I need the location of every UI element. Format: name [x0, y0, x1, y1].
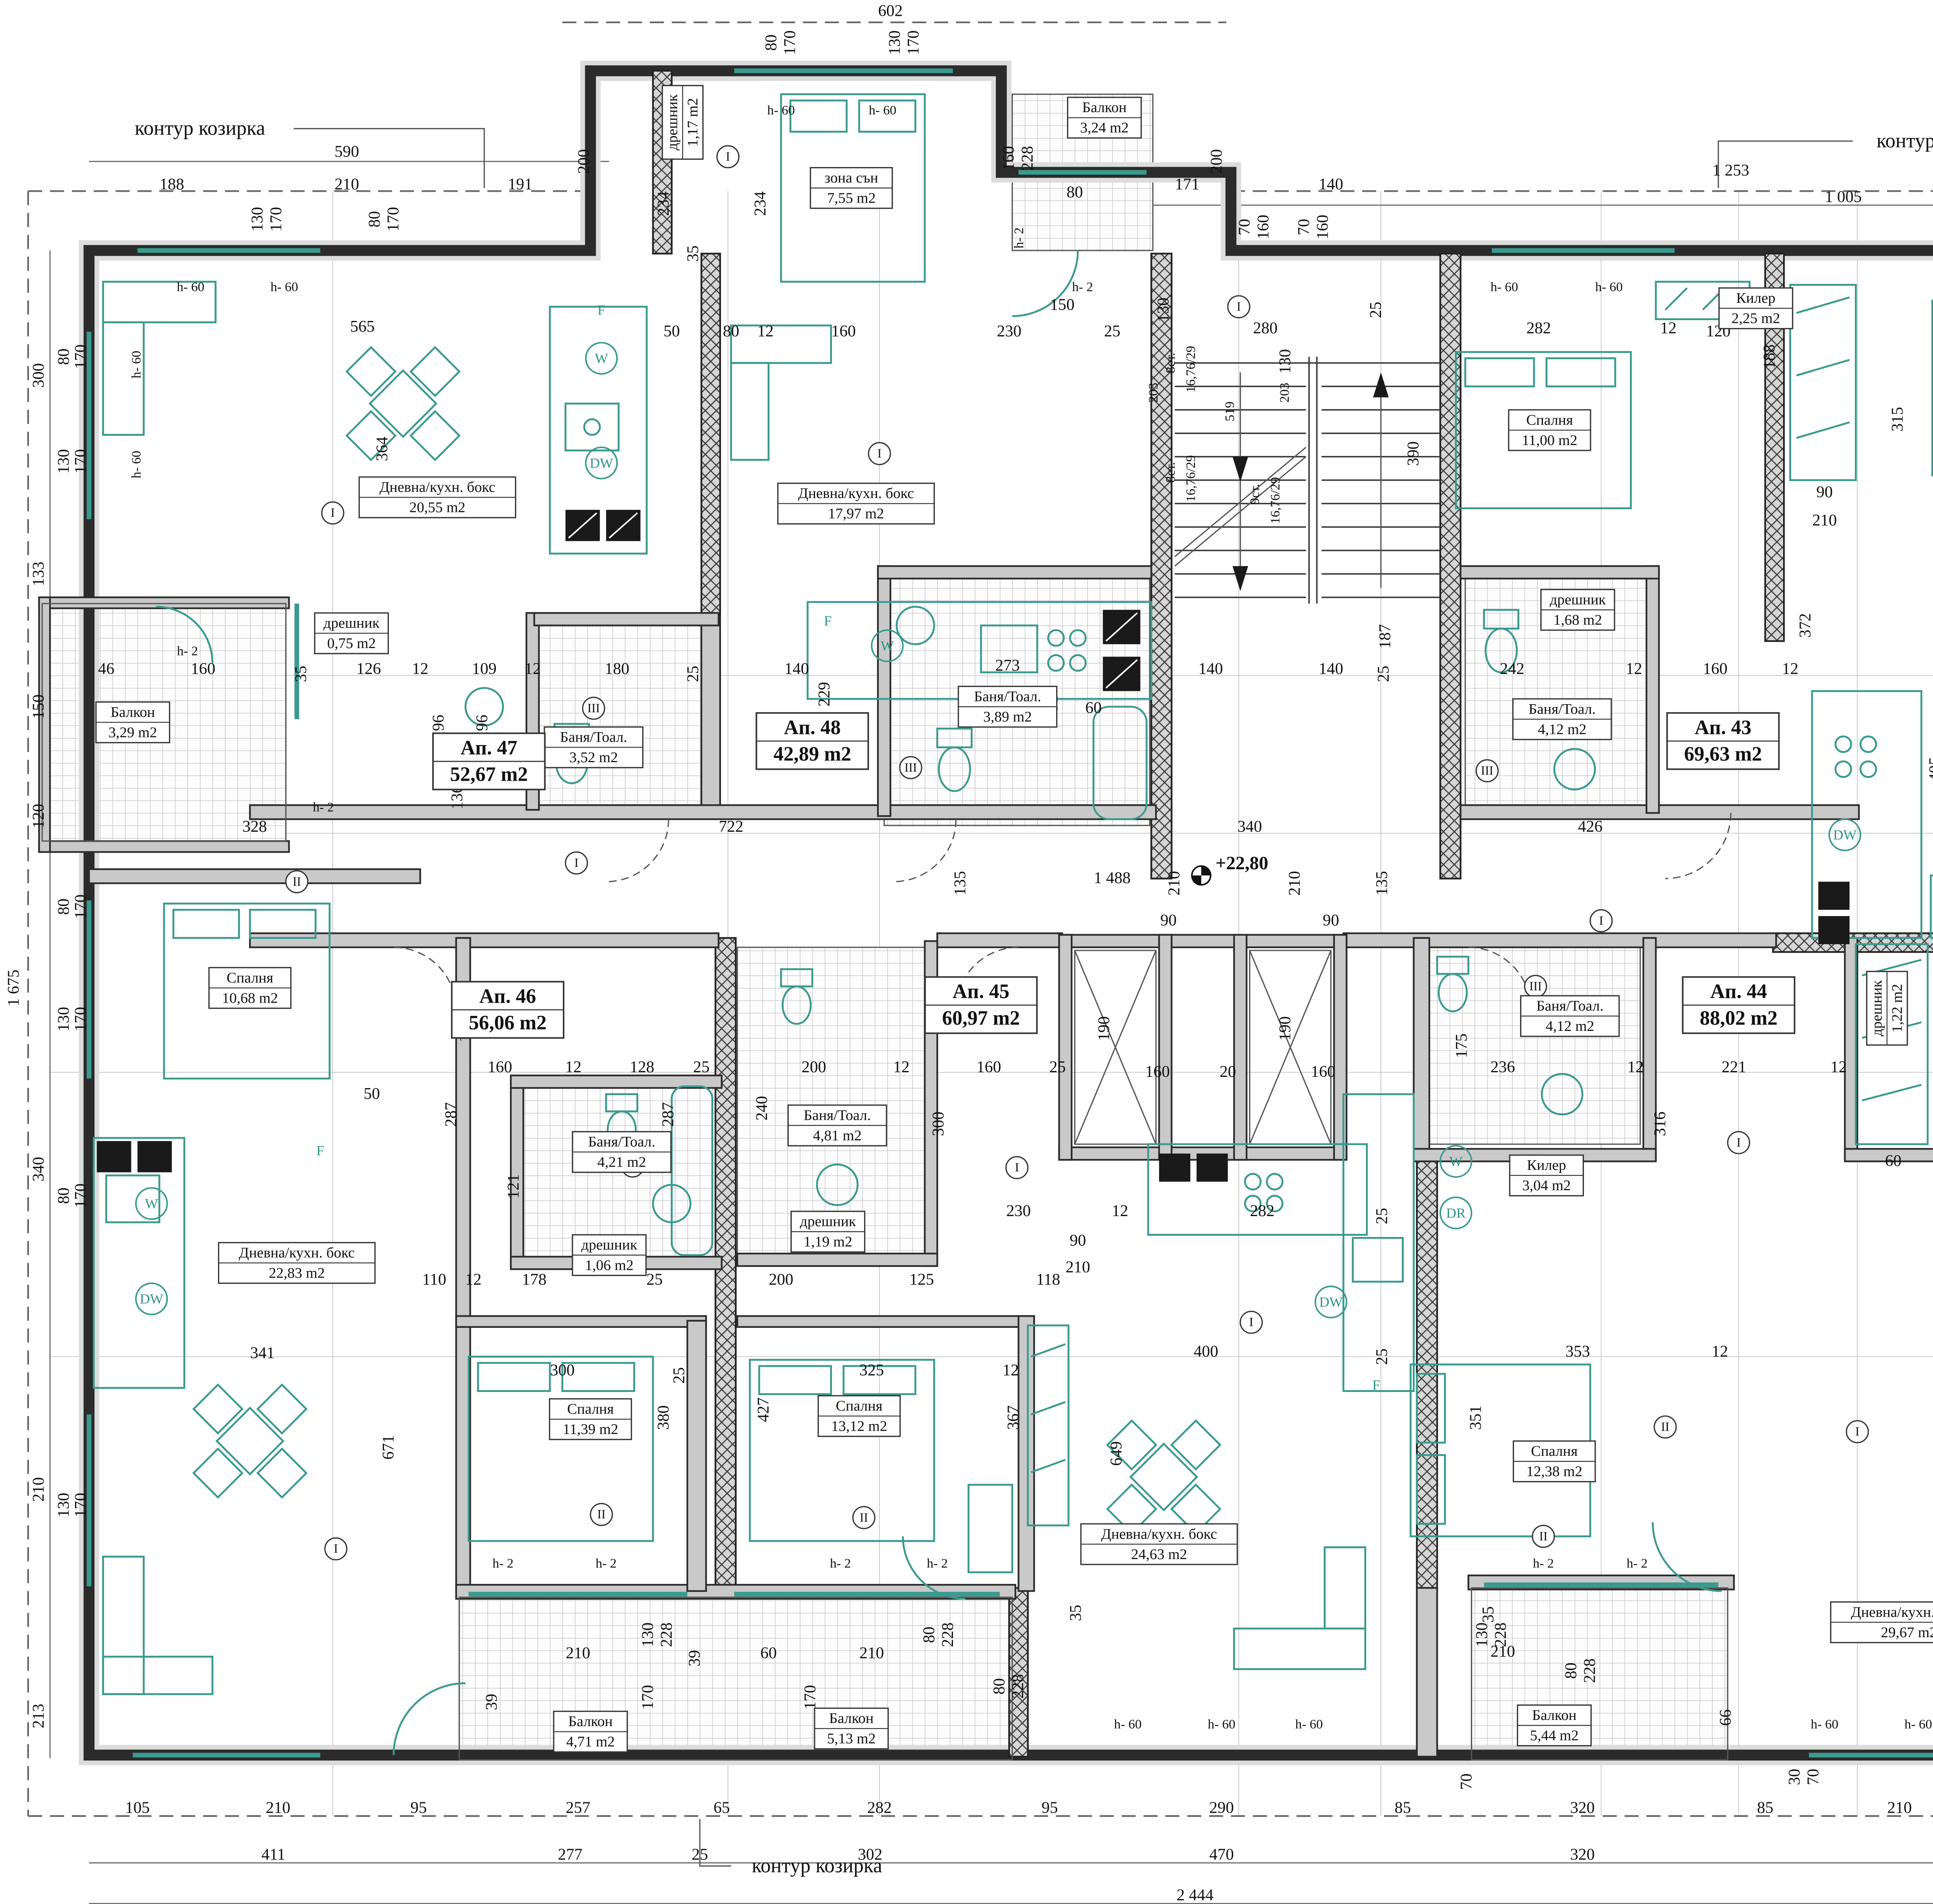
note-label: h- 60 — [129, 451, 144, 479]
room-name: Баня/Тоал. — [1529, 701, 1596, 717]
dimension-label: 170 — [639, 1685, 657, 1710]
dimension-label: 90 — [1160, 911, 1176, 929]
room-label: Килер2,25 m2 — [1719, 288, 1793, 329]
apartment-number: Ап. 47 — [460, 737, 517, 759]
note-label: h- 60 — [1114, 1717, 1142, 1732]
appliance-label: DW — [590, 455, 613, 471]
dimension-label: 80 — [1562, 1662, 1580, 1679]
dimension-label: 170 — [781, 31, 799, 55]
note-label: 9ст. — [1248, 484, 1262, 504]
dimension-label: 1 005 — [1825, 188, 1861, 206]
axis-mark: I — [1728, 1132, 1750, 1154]
dimension-label: 12 — [1660, 319, 1676, 337]
dimension-label: 160 — [977, 1058, 1001, 1076]
room-name: Дневна/кухн. бокс — [1851, 1604, 1933, 1620]
dimension-label: 282 — [867, 1798, 892, 1817]
dimension-label: 234 — [654, 191, 672, 216]
dimension-label: 300 — [550, 1361, 575, 1379]
dimension-label: 210 — [566, 1644, 590, 1662]
dimension-label: 12 — [893, 1058, 909, 1076]
axis-mark: I — [1240, 1311, 1262, 1333]
dimension-label: 35 — [1067, 1605, 1085, 1621]
room-area: 11,00 m2 — [1522, 432, 1578, 449]
dimension-label: 351 — [1467, 1405, 1485, 1430]
apartment-area: 56,06 m2 — [469, 1012, 547, 1034]
dimension-label: 12 — [1782, 660, 1798, 678]
dimension-label: 170 — [72, 449, 90, 474]
note-label: h- 60 — [129, 351, 144, 379]
floor-plan-page: N +22,80 контур козирка контур козирка к… — [0, 0, 1933, 1904]
room-name: Дневна/кухн. бокс — [1101, 1526, 1217, 1542]
appliance-label: W — [145, 1196, 159, 1211]
dimension-label: 242 — [1500, 660, 1525, 678]
dimension-label: 70 — [1457, 1773, 1475, 1790]
dimension-label: 228 — [939, 1622, 957, 1647]
note-label: 8ст. — [1163, 462, 1178, 483]
axis-mark-label: I — [877, 446, 881, 460]
appliance-symbol: F — [824, 613, 832, 629]
note-label: h- 60 — [767, 103, 795, 118]
appliance-symbol: W — [136, 1188, 167, 1219]
axis-mark: I — [717, 146, 739, 168]
room-area: 4,12 m2 — [1538, 721, 1587, 737]
dimension-label: 200 — [769, 1271, 794, 1289]
dimension-label: 2 444 — [1176, 1886, 1213, 1904]
dining-set — [1108, 1421, 1220, 1533]
dimension-label: 12 — [1112, 1202, 1128, 1220]
dimension-label: 80 — [920, 1627, 938, 1643]
apartment-number: Ап. 43 — [1694, 716, 1751, 739]
elevation-value: +22,80 — [1215, 853, 1268, 874]
axis-mark: II — [286, 871, 308, 893]
apartment-number: Ап. 46 — [479, 985, 536, 1007]
apartment-label: Ап. 4560,97 m2 — [925, 977, 1037, 1033]
dimension-label: 290 — [1209, 1798, 1234, 1817]
dimension-label: 105 — [125, 1798, 150, 1817]
appliance-label: W — [1449, 1154, 1463, 1169]
note-label: 16,76/29 — [1183, 346, 1198, 392]
dimension-label: 171 — [1175, 175, 1200, 193]
apartment-label: Ап. 4656,06 m2 — [452, 982, 564, 1038]
dimension-label: 30 — [1785, 1769, 1803, 1785]
wardrobe — [1790, 285, 1856, 480]
dimension-label: 118 — [1036, 1271, 1060, 1289]
axis-mark-label: II — [1539, 1529, 1548, 1543]
apartment-area: 60,97 m2 — [942, 1007, 1020, 1029]
dimension-label: 340 — [1238, 817, 1262, 836]
room-name: Баня/Тоал. — [560, 729, 627, 746]
axis-mark-label: II — [293, 874, 301, 888]
room-label: Балкон4,71 m2 — [554, 1711, 627, 1752]
room-area: 1,68 m2 — [1553, 612, 1602, 628]
room-label: дрешник1,22 m2 — [1867, 971, 1907, 1045]
room-name: Балкон — [568, 1713, 613, 1730]
dimension-label: 1 253 — [1712, 161, 1749, 179]
dimension-label: 300 — [929, 1112, 948, 1136]
dimension-label: 411 — [261, 1846, 285, 1864]
dimension-label: 60 — [1085, 699, 1101, 717]
dimension-label: 65 — [714, 1798, 730, 1817]
room-label: Спалня11,00 m2 — [1509, 410, 1590, 450]
room-label: дрешник1,68 m2 — [1541, 590, 1614, 630]
canopy-label-top-left: контур козирка — [135, 117, 265, 140]
room-name: Балкон — [1082, 99, 1127, 116]
dimension-label: 228 — [1018, 146, 1036, 171]
room-label: дрешник1,19 m2 — [791, 1211, 864, 1252]
dimension-label: 135 — [951, 871, 969, 896]
dimension-label: 35 — [292, 666, 310, 682]
dimension-label: 25 — [692, 1846, 708, 1864]
dimension-label: 282 — [1526, 319, 1551, 337]
kitchen-counter — [94, 1138, 184, 1388]
dimension-label: 213 — [29, 1704, 48, 1728]
room-area: 11,39 m2 — [563, 1421, 619, 1438]
axis-mark: III — [1476, 760, 1498, 782]
dimension-label: 12 — [412, 660, 428, 678]
dimension-label: 130 — [1473, 1622, 1491, 1647]
room-label: Спалня12,38 m2 — [1514, 1441, 1595, 1482]
room-area: 5,44 m2 — [1530, 1728, 1579, 1744]
dimension-label: 130 — [885, 31, 903, 55]
room-label: Дневна/кухн. бокс29,67 m2 — [1831, 1602, 1933, 1643]
room-label: Килер3,04 m2 — [1510, 1155, 1583, 1196]
dimension-label: 170 — [72, 1184, 90, 1208]
dimension-label: 210 — [1812, 511, 1837, 529]
appliance-label: F — [598, 302, 605, 317]
axis-mark: II — [1532, 1525, 1555, 1547]
dimension-label: 170 — [72, 1007, 90, 1032]
dimension-label: 80 — [990, 1678, 1008, 1694]
axis-mark: III — [900, 757, 922, 779]
sofa — [731, 326, 831, 460]
dimension-label: 390 — [1404, 441, 1422, 466]
interior-walls — [39, 71, 1933, 1757]
dimension-label: 341 — [250, 1344, 275, 1362]
room-label: Баня/Тоал.4,12 m2 — [1513, 699, 1611, 739]
dimension-label: 228 — [657, 1622, 675, 1647]
dimension-label: 70 — [1295, 219, 1313, 235]
dimension-label: 95 — [1042, 1798, 1058, 1817]
dimension-label: 85 — [1394, 1798, 1411, 1817]
room-area: 4,81 m2 — [813, 1128, 862, 1144]
dimension-label: 229 — [815, 682, 834, 706]
windows — [42, 71, 1933, 1760]
room-label: Спалня11,39 m2 — [549, 1399, 631, 1440]
dimension-label: 25 — [1373, 1208, 1391, 1224]
dimension-label: 565 — [350, 317, 375, 336]
dimension-label: 25 — [693, 1058, 709, 1076]
room-area: 4,12 m2 — [1546, 1018, 1594, 1034]
room-label: дрешник0,75 m2 — [315, 613, 388, 653]
room-name: дрешник — [800, 1213, 856, 1230]
axis-mark: II — [1654, 1416, 1676, 1438]
room-name: Спалня — [1526, 412, 1573, 428]
dimension-label: 12 — [525, 660, 541, 678]
dimension-label: 240 — [753, 1096, 771, 1121]
room-name: дрешник — [324, 615, 380, 631]
dimension-label: 210 — [334, 175, 359, 193]
dimension-label: 200 — [801, 1058, 826, 1076]
note-label: 16,76/29 — [1268, 477, 1282, 524]
dimension-label: 228 — [1009, 1674, 1027, 1699]
dimension-label: 160 — [191, 660, 215, 678]
elevator-shaft-left — [1075, 950, 1156, 1144]
dimension-label: 80 — [1067, 183, 1083, 201]
dimension-label: 340 — [29, 1157, 48, 1182]
dimension-label: 39 — [482, 1694, 501, 1710]
elevator-core — [1059, 935, 1347, 1160]
appliance-symbol: F — [316, 1143, 324, 1158]
dimension-label: 170 — [72, 894, 90, 919]
axis-mark: I — [566, 852, 588, 874]
note-label: h- 2 — [1012, 227, 1026, 248]
dimension-label: 125 — [909, 1271, 934, 1289]
dimension-label: 126 — [356, 660, 381, 678]
apartment-number: Ап. 48 — [784, 716, 841, 739]
dimension-label: 20 — [1220, 1063, 1236, 1081]
room-name: Дневна/кухн. бокс — [798, 485, 914, 502]
room-label: Спалня10,68 m2 — [209, 967, 291, 1008]
dimension-label: 140 — [1319, 175, 1343, 193]
dimension-label: 160 — [1145, 1063, 1170, 1081]
axis-mark: I — [1590, 910, 1612, 932]
dimension-label: 12 — [565, 1058, 581, 1076]
dimension-label: 180 — [605, 660, 629, 678]
room-area: 1,17 m2 — [685, 98, 701, 147]
dimension-label: 221 — [1722, 1058, 1746, 1076]
room-area: 17,97 m2 — [828, 506, 884, 522]
note-label: h- 2 — [927, 1556, 948, 1571]
kitchen-counter — [1343, 1094, 1414, 1391]
room-area: 3,52 m2 — [569, 749, 618, 766]
appliance-label: W — [881, 638, 894, 653]
appliance-symbol: DW — [1829, 819, 1861, 851]
room-area: 29,67 m2 — [1881, 1624, 1933, 1641]
dimension-label: 671 — [379, 1435, 397, 1460]
dimension-label: 130 — [55, 449, 73, 474]
appliance-label: F — [824, 613, 832, 629]
sofa — [103, 282, 216, 435]
dimension-label: 325 — [859, 1361, 884, 1379]
note-label: h- 2 — [1072, 280, 1093, 294]
axis-mark-label: III — [905, 760, 917, 774]
room-name: Спалня — [567, 1401, 614, 1417]
dimension-label: 400 — [1194, 1343, 1219, 1361]
axis-mark-label: III — [587, 701, 600, 715]
room-name: Спалня — [1531, 1443, 1578, 1459]
dimension-label: 160 — [1311, 1063, 1336, 1081]
dimension-label: 90 — [1323, 911, 1339, 929]
room-area: 5,13 m2 — [827, 1731, 876, 1747]
appliance-label: F — [316, 1143, 324, 1158]
dimension-label: 257 — [566, 1798, 590, 1817]
dimension-label: 121 — [504, 1174, 522, 1199]
dimension-label: 35 — [684, 246, 702, 262]
room-name: Балкон — [1532, 1707, 1577, 1723]
axis-mark-label: I — [1855, 1425, 1860, 1438]
appliance-symbol: F — [598, 302, 605, 317]
dimension-label: 178 — [522, 1271, 547, 1289]
dimension-label: 25 — [1367, 302, 1385, 318]
dimension-label: 228 — [1580, 1658, 1599, 1683]
dimension-label: 188 — [1760, 345, 1778, 369]
dimension-label: 12 — [465, 1271, 481, 1289]
axis-mark-label: I — [726, 149, 730, 163]
room-area: 24,63 m2 — [1131, 1546, 1187, 1563]
room-area: 1,06 m2 — [585, 1257, 634, 1273]
appliance-symbol: DW — [136, 1283, 167, 1315]
bed — [469, 1357, 653, 1541]
note-label: h- 60 — [1595, 280, 1623, 294]
room-label: Баня/Тоал.3,52 m2 — [544, 727, 643, 768]
room-area: 4,21 m2 — [597, 1154, 646, 1170]
note-label: h- 60 — [1490, 280, 1518, 294]
dimension-label: 405 — [1926, 757, 1933, 781]
dimension-label: 160 — [831, 322, 856, 340]
dimension-label: 1 675 — [4, 969, 22, 1006]
dimension-label: 364 — [373, 437, 391, 461]
dimension-label: 85 — [1757, 1798, 1773, 1817]
axis-mark: II — [853, 1506, 875, 1529]
appliance-symbol: DR — [1440, 1197, 1471, 1228]
room-name: Дневна/кухн. бокс — [239, 1245, 355, 1261]
room-name: дрешник — [1869, 980, 1885, 1036]
dimension-label: 140 — [784, 660, 809, 678]
axis-mark-label: I — [574, 856, 579, 870]
dimension-label: 12 — [1002, 1361, 1019, 1379]
dimension-label: 130 — [639, 1622, 657, 1647]
axis-mark-label: I — [334, 1542, 338, 1556]
room-name: Балкон — [111, 704, 155, 720]
dimension-label: 60 — [760, 1644, 777, 1662]
dimension-label: 353 — [1565, 1343, 1590, 1361]
dimension-label: 230 — [1006, 1202, 1031, 1220]
apartment-number: Ап. 44 — [1710, 980, 1767, 1003]
dimension-label: 160 — [999, 146, 1018, 171]
room-name: Балкон — [829, 1710, 874, 1727]
dimension-label: 380 — [654, 1405, 672, 1430]
axis-mark-label: I — [1737, 1135, 1741, 1149]
room-label: Дневна/кухн. бокс17,97 m2 — [778, 483, 934, 524]
note-label: h- 2 — [313, 800, 334, 814]
note-label: h- 2 — [493, 1556, 513, 1571]
dimension-label: 25 — [1104, 322, 1120, 340]
note-label: 8ст. — [1163, 353, 1178, 373]
room-label: Дневна/кухн. бокс20,55 m2 — [359, 477, 515, 518]
dimension-label: 210 — [29, 1477, 48, 1502]
floor-plan-drawing: N +22,80 контур козирка контур козирка к… — [0, 0, 1933, 1904]
dimension-label: 170 — [384, 207, 402, 232]
dimension-label: 130 — [1154, 297, 1172, 322]
dimension-label: 602 — [878, 2, 903, 20]
staircase — [1175, 357, 1440, 604]
dimension-label: 210 — [1887, 1798, 1912, 1817]
dimension-label: 130 — [248, 207, 266, 232]
dimension-label: 25 — [684, 666, 702, 682]
dimension-label: 1 488 — [1094, 869, 1130, 887]
dimension-label: 234 — [751, 191, 769, 216]
dimension-label: 200 — [1207, 149, 1226, 174]
axis-mark-label: I — [1249, 1315, 1253, 1329]
dimension-label: 277 — [558, 1846, 583, 1864]
dimension-label: 316 — [1651, 1112, 1669, 1136]
dimension-label: 80 — [365, 211, 384, 227]
axis-mark-label: II — [597, 1507, 606, 1521]
dimension-label: 170 — [801, 1685, 819, 1710]
dimension-label: 60 — [1885, 1152, 1901, 1170]
appliance-label: DW — [140, 1291, 164, 1307]
note-label: h- 2 — [830, 1556, 851, 1571]
dimension-label: 160 — [488, 1058, 512, 1076]
appliance-label: DR — [1446, 1205, 1466, 1221]
room-name: дрешник — [581, 1237, 637, 1253]
note-label: h- 60 — [1904, 1717, 1932, 1732]
room-area: 1,19 m2 — [804, 1234, 852, 1250]
room-area: 2,25 m2 — [1732, 311, 1780, 327]
dimension-label: 210 — [1165, 871, 1183, 896]
dimension-label: 135 — [1373, 871, 1391, 896]
room-label: дрешник1,17 m2 — [662, 85, 703, 159]
room-label: Дневна/кухн. бокс22,83 m2 — [218, 1243, 375, 1283]
dimension-label: 302 — [858, 1846, 883, 1864]
canopy-label-top-right: контур козирка — [1877, 130, 1933, 152]
appliance-symbol: F — [1372, 1377, 1380, 1392]
appliance-label: DW — [1319, 1294, 1343, 1310]
dining-set — [194, 1385, 306, 1497]
axis-mark: I — [1006, 1157, 1028, 1179]
dimension-label: 649 — [1107, 1441, 1125, 1466]
room-area: 3,04 m2 — [1522, 1177, 1571, 1194]
room-name: Спалня — [227, 970, 273, 986]
axis-mark-label: I — [331, 506, 335, 520]
axis-mark: I — [1846, 1421, 1868, 1443]
room-label: Баня/Тоал.4,12 m2 — [1521, 996, 1619, 1036]
note-label: h- 60 — [1811, 1717, 1839, 1732]
room-label: Балкон3,24 m2 — [1068, 97, 1141, 138]
elevation-mark: +22,80 — [1192, 853, 1268, 885]
room-name: зона сън — [825, 170, 878, 186]
dimension-label: 200 — [574, 149, 593, 174]
apartment-label: Ап. 4752,67 m2 — [433, 733, 545, 789]
dimension-label: 210 — [1285, 871, 1304, 896]
dimension-label: 228 — [1492, 1622, 1510, 1647]
room-name: Баня/Тоал. — [974, 688, 1041, 705]
apartment-area: 42,89 m2 — [773, 743, 851, 765]
note-label: 16,76/29 — [1183, 455, 1198, 502]
room-name: дрешник — [1550, 592, 1606, 608]
room-area: 3,24 m2 — [1080, 120, 1129, 136]
dimension-label: 320 — [1570, 1846, 1595, 1864]
appliance-symbol: W — [586, 343, 617, 374]
appliance-label: F — [1372, 1377, 1380, 1392]
dimension-label: 170 — [72, 1493, 90, 1518]
dimension-label: 170 — [904, 31, 922, 55]
dimension-label: 190 — [1095, 1016, 1113, 1041]
room-label: Балкон5,44 m2 — [1517, 1705, 1591, 1746]
room-area: 12,38 m2 — [1526, 1464, 1582, 1480]
dimension-label: 287 — [659, 1102, 677, 1127]
apartment-area: 88,02 m2 — [1700, 1007, 1778, 1029]
dimension-label: 188 — [160, 175, 184, 193]
dimension-label: 133 — [29, 561, 48, 586]
axis-mark: III — [583, 697, 605, 719]
note-label: h- 2 — [1533, 1556, 1554, 1571]
dimension-label: 170 — [267, 207, 285, 232]
dimension-label: 328 — [242, 817, 267, 836]
room-name: дрешник — [665, 94, 681, 150]
dimension-label: 210 — [1065, 1258, 1090, 1276]
dimension-label: 120 — [29, 804, 48, 829]
